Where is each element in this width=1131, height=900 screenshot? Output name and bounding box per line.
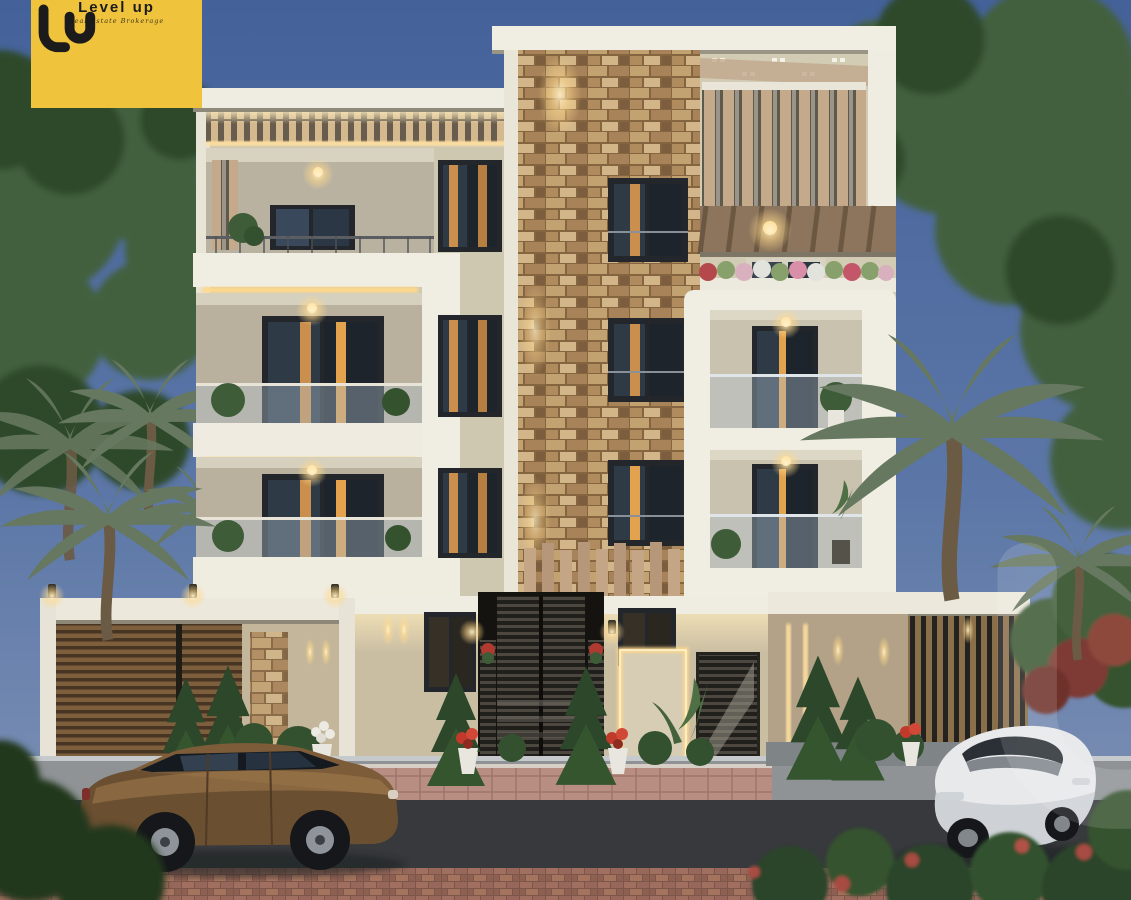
balcony-flower-boxes [699, 260, 896, 292]
roof-slab-right [492, 26, 896, 50]
stone-clad-tower [504, 50, 700, 608]
lantern-sconce [599, 619, 625, 645]
lantern-sconce [459, 619, 485, 645]
architectural-render-scene: Level up Real Estate Brokerage lu [0, 0, 1131, 900]
levelup-monogram-icon [31, 4, 101, 58]
top-floor-window [438, 160, 502, 252]
second-floor-balcony [196, 293, 422, 423]
third-floor-balcony [196, 457, 422, 557]
top-floor-balcony [206, 148, 434, 255]
stone-tower-windows [608, 178, 688, 546]
right-balcony-tower [684, 290, 896, 608]
render-canvas [0, 0, 1131, 900]
left-wing-cornice [193, 88, 525, 146]
logo-tagline: Real Estate Brokerage [69, 17, 164, 25]
levelup-logo-card: Level up Real Estate Brokerage [31, 0, 202, 108]
garage-door-left [56, 624, 176, 764]
entrance-paving [352, 766, 772, 804]
